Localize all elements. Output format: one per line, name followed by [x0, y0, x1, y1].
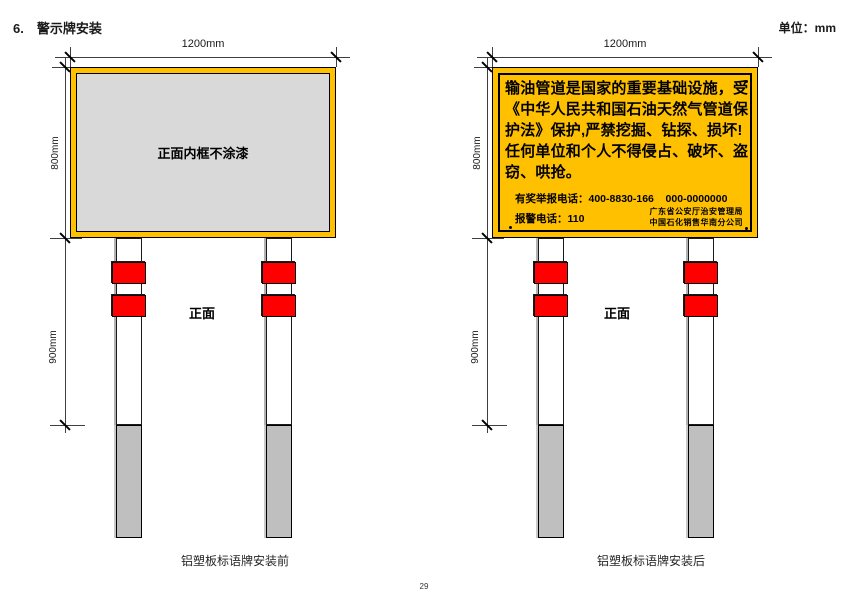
warning-line: 《中华人民共和国石油天然气管道保 [505, 99, 749, 120]
warning-line: 任何单位和个人不得侵占、破坏、盗 [505, 141, 749, 162]
warning-line: 护法》保护,严禁挖掘、钻探、损坏! [505, 120, 749, 141]
before-post-height-label: 900mm [48, 327, 60, 367]
after-width-label: 1200mm [575, 38, 675, 50]
reflective-band [534, 295, 568, 317]
after-caption: 铝塑板标语牌安装后 [551, 552, 751, 569]
before-width-dimension-line [55, 57, 350, 58]
organization-names: 广东省公安厅治安管理局 中国石化销售华南分公司 [650, 206, 744, 228]
police-phone-text: 报警电话：110 [515, 211, 584, 226]
document-page: 6.警示牌安装 单位：mm 1200mm 800mm 900mm 正面内框不涂漆 [0, 0, 852, 609]
hotline-text: 有奖举报电话：400-8830-166 000-0000000 [515, 191, 727, 206]
before-sign-panel: 正面内框不涂漆 [76, 73, 330, 232]
before-sign-board: 正面内框不涂漆 [70, 67, 336, 238]
screw-dot [745, 227, 748, 230]
before-height-dimension-line [65, 57, 66, 433]
before-front-label: 正面 [172, 303, 232, 322]
section-title: 警示牌安装 [37, 21, 102, 36]
reflective-band [534, 262, 568, 284]
after-right-post-underground [688, 425, 714, 538]
reflective-band [112, 295, 146, 317]
after-front-label: 正面 [587, 303, 647, 322]
after-height-label: 800mm [472, 133, 484, 173]
before-right-post-underground [266, 425, 292, 538]
reflective-band [262, 262, 296, 284]
warning-text: 输油管道是国家的重要基础设施，受 《中华人民共和国石油天然气管道保 护法》保护,… [505, 78, 749, 183]
before-caption: 铝塑板标语牌安装前 [135, 552, 335, 569]
reflective-band [112, 262, 146, 284]
section-number: 6. [13, 21, 24, 36]
after-post-height-label: 900mm [470, 327, 482, 367]
screw-dot [745, 80, 748, 83]
section-heading: 6.警示牌安装 [13, 18, 102, 37]
reflective-band [262, 295, 296, 317]
before-height-label: 800mm [50, 133, 62, 173]
after-width-dimension-line [477, 57, 772, 58]
after-sign-board: 输油管道是国家的重要基础设施，受 《中华人民共和国石油天然气管道保 护法》保护,… [492, 67, 758, 238]
org-line: 中国石化销售华南分公司 [650, 217, 744, 228]
warning-line: 输油管道是国家的重要基础设施，受 [505, 78, 749, 99]
before-width-label: 1200mm [153, 38, 253, 50]
reflective-band [684, 295, 718, 317]
after-height-dimension-line [487, 57, 488, 433]
before-panel-note: 正面内框不涂漆 [157, 143, 248, 162]
before-left-post-underground [116, 425, 142, 538]
unit-label: 单位：mm [779, 19, 836, 36]
screw-dot [510, 80, 513, 83]
page-number: 29 [404, 582, 444, 591]
reflective-band [684, 262, 718, 284]
screw-dot [509, 226, 512, 229]
warning-line: 窃、哄抢。 [505, 162, 749, 183]
after-left-post-underground [538, 425, 564, 538]
org-line: 广东省公安厅治安管理局 [650, 206, 744, 217]
